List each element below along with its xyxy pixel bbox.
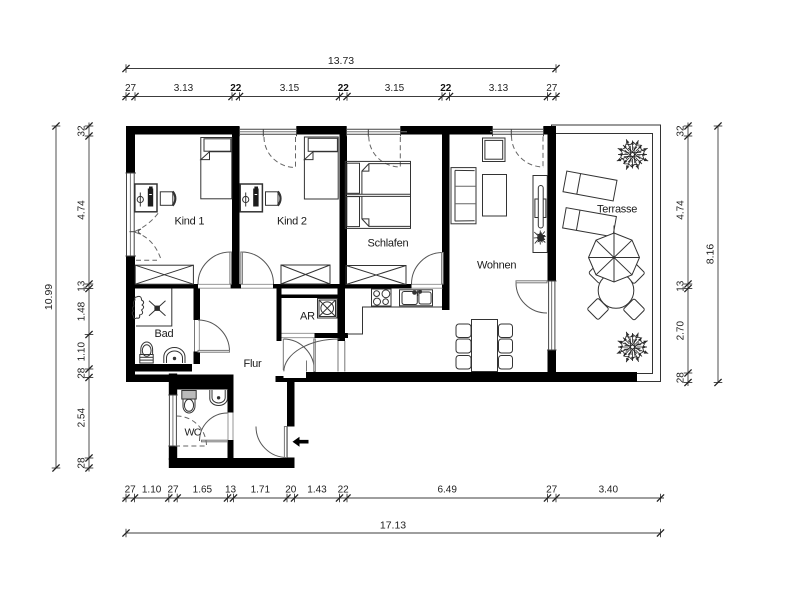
svg-text:Kind 2: Kind 2 [277,216,307,228]
svg-text:1.65: 1.65 [193,485,213,496]
svg-text:27: 27 [125,485,137,496]
svg-text:17.13: 17.13 [380,520,406,532]
svg-text:13: 13 [676,280,687,292]
svg-text:3.15: 3.15 [385,83,405,94]
svg-text:Schlafen: Schlafen [368,238,409,250]
svg-text:1.71: 1.71 [251,485,271,496]
svg-text:32: 32 [676,125,687,137]
svg-text:27: 27 [546,485,558,496]
svg-text:Wohnen: Wohnen [477,260,516,272]
svg-text:2.70: 2.70 [676,321,687,341]
svg-text:AR: AR [300,311,315,323]
svg-text:22: 22 [230,83,242,94]
svg-text:20: 20 [285,485,297,496]
svg-text:3.15: 3.15 [280,83,300,94]
svg-text:27: 27 [546,83,558,94]
svg-text:27: 27 [125,83,137,94]
svg-text:Terrasse: Terrasse [597,204,637,216]
svg-text:Flur: Flur [244,358,263,370]
svg-text:WC: WC [185,427,202,439]
svg-text:Kind 1: Kind 1 [175,216,205,228]
svg-text:1.10: 1.10 [142,485,162,496]
svg-text:2.54: 2.54 [77,408,88,428]
svg-text:22: 22 [338,485,350,496]
svg-text:1.48: 1.48 [77,301,88,321]
svg-text:3.13: 3.13 [174,83,194,94]
svg-text:Bad: Bad [155,328,174,340]
svg-text:3.40: 3.40 [599,485,619,496]
svg-text:22: 22 [440,83,452,94]
svg-text:32: 32 [77,125,88,137]
svg-text:22: 22 [338,83,350,94]
svg-text:6.49: 6.49 [437,485,457,496]
svg-text:13: 13 [77,280,88,292]
svg-text:1.10: 1.10 [77,342,88,362]
svg-text:13: 13 [225,485,237,496]
svg-text:28: 28 [77,367,88,379]
svg-text:28: 28 [676,372,687,384]
svg-text:4.74: 4.74 [676,200,687,220]
svg-text:10.99: 10.99 [43,284,55,310]
svg-text:3.13: 3.13 [489,83,509,94]
svg-text:8.16: 8.16 [705,244,717,265]
svg-text:1.43: 1.43 [307,485,327,496]
svg-text:4.74: 4.74 [77,200,88,220]
svg-text:13.73: 13.73 [328,55,354,67]
svg-text:28: 28 [77,457,88,469]
svg-text:27: 27 [167,485,179,496]
